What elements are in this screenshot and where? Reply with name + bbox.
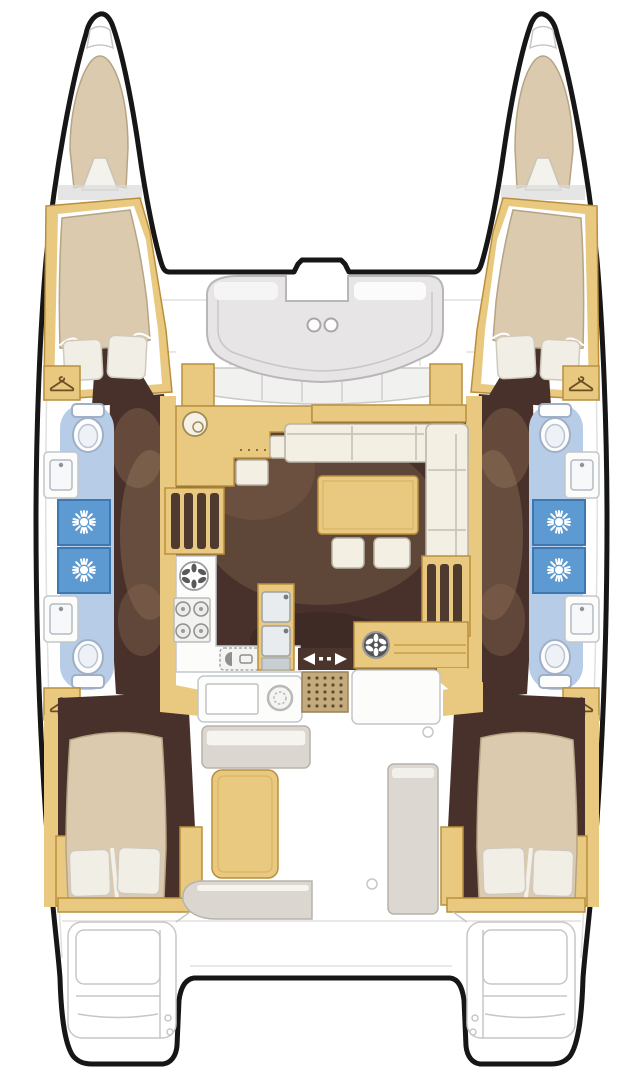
sliding-door [298,648,352,670]
forepeak-bulkhead [58,185,142,200]
round-hatch-icon [268,686,292,710]
galley-faucet-sink [220,648,262,670]
faucet [284,629,289,634]
step-tread [210,493,219,549]
floor-plan-image [0,0,643,1080]
step-tread [171,493,180,549]
burner-icon [176,624,190,638]
burner-icon [176,602,190,616]
cup-holder-icon [308,319,321,332]
stool [374,538,410,568]
vanity-sink-forward [44,452,78,498]
shower-spray-icon [73,559,95,581]
shower-spray-icon [73,511,95,533]
wardrobe-locker [44,366,80,400]
wet-bar-counter [352,670,440,724]
toilet-forward [72,404,104,452]
slide-arrows-icon [327,657,331,661]
door-mat-icon [302,672,348,712]
cockpit-galley-module [198,676,302,722]
cockpit-bench-cushion [206,730,306,746]
cockpit-table [212,770,278,878]
sideboard [312,405,466,422]
round-basin-icon [363,632,389,658]
step-tread [197,493,206,549]
door-swing-shadow [118,584,166,656]
coachroof-post [430,364,462,406]
chart-seat [236,460,268,485]
saloon [160,396,482,702]
toilet-aft [72,640,104,688]
bench-cushion [354,282,426,300]
step-tread [427,564,436,626]
appliance-front [262,658,290,670]
burner-icon [194,624,208,638]
saloon-table [318,476,418,534]
faucet [284,595,289,600]
step-tread [440,564,449,626]
pillow [107,335,147,379]
pillow [69,849,111,896]
burner-icon [194,602,208,616]
step-tread [453,564,462,626]
vanity-sink-aft [44,596,78,642]
slide-arrows-icon [319,657,323,661]
stool [332,538,364,568]
cockpit-module-starboard [388,764,438,914]
round-basin-icon [183,412,207,436]
aft-cabin-bulkhead [58,898,196,912]
cup-holder-icon [325,319,338,332]
step-tread [184,493,193,549]
module-hatch [206,684,258,714]
pillow [117,847,161,894]
catamaran-floor-plan-canvas [0,0,643,1080]
cockpit-module-top [392,768,434,778]
bench-cushion [214,282,278,300]
coachroof-post [182,364,214,406]
